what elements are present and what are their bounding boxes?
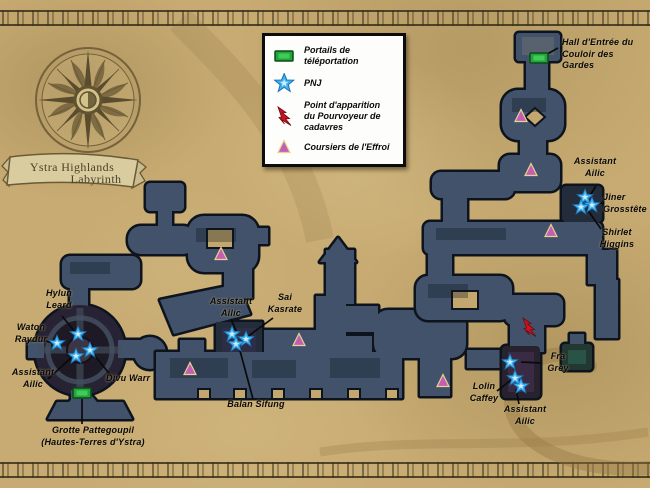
label-shirlet-higgins: Shirlet Higgins [590, 227, 644, 250]
label-jiner-grosstete: Jiner Grosstête [603, 192, 649, 215]
label-assistant-ailic-ne: Assistant Ailic [566, 156, 624, 179]
npc-star-icon [269, 73, 299, 93]
label-assistant-ailic-s: Assistant Ailic [492, 404, 558, 427]
spawn-lightning-icon [269, 104, 299, 128]
legend-panel: Portails de téléportation PNJ Point d'ap… [262, 33, 406, 167]
label-hylun-leard: Hylun Leard [36, 288, 82, 311]
courier-triangle-icon [269, 139, 299, 155]
label-waton-raydur: Waton Raydur [6, 322, 56, 345]
legend-item-pnj: PNJ [269, 73, 399, 93]
map-title-line2: Labyrinth [71, 172, 122, 186]
label-lolin-caffey: Lolin Caffey [460, 381, 508, 404]
portal-marker [530, 53, 548, 63]
label-divu-warr: Divu Warr [106, 373, 162, 385]
label-grotte-pattegoupil: Grotte Pattegoupil (Hautes-Terres d'Ystr… [24, 425, 162, 448]
legend-label: PNJ [304, 78, 322, 89]
legend-label: Portails de téléportation [304, 45, 359, 67]
portal-marker [73, 388, 91, 398]
legend-label: Coursiers de l'Effroi [304, 142, 390, 153]
map-canvas: Ystra Highlands Labyrinth [0, 0, 650, 488]
legend-label: Point d'apparition du Pourvoyeur de cada… [304, 100, 381, 133]
legend-item-portals: Portails de téléportation [269, 45, 399, 67]
label-fra-grey: Fra Grey [540, 351, 576, 374]
portal-icon [269, 49, 299, 63]
legend-item-couriers: Coursiers de l'Effroi [269, 139, 399, 155]
label-balan-sifung: Balan Sifung [220, 399, 292, 411]
label-hall-entree: Hall d'Entrée du Couloir des Gardes [562, 37, 648, 72]
label-assistant-ailic-c: Assistant Ailic [204, 296, 258, 319]
map-title-banner: Ystra Highlands Labyrinth [2, 154, 146, 188]
compass-rose-icon [36, 48, 140, 152]
label-sai-kasrate: Sai Kasrate [258, 292, 312, 315]
legend-item-spawn: Point d'apparition du Pourvoyeur de cada… [269, 100, 399, 133]
label-assistant-ailic-w: Assistant Ailic [4, 367, 62, 390]
